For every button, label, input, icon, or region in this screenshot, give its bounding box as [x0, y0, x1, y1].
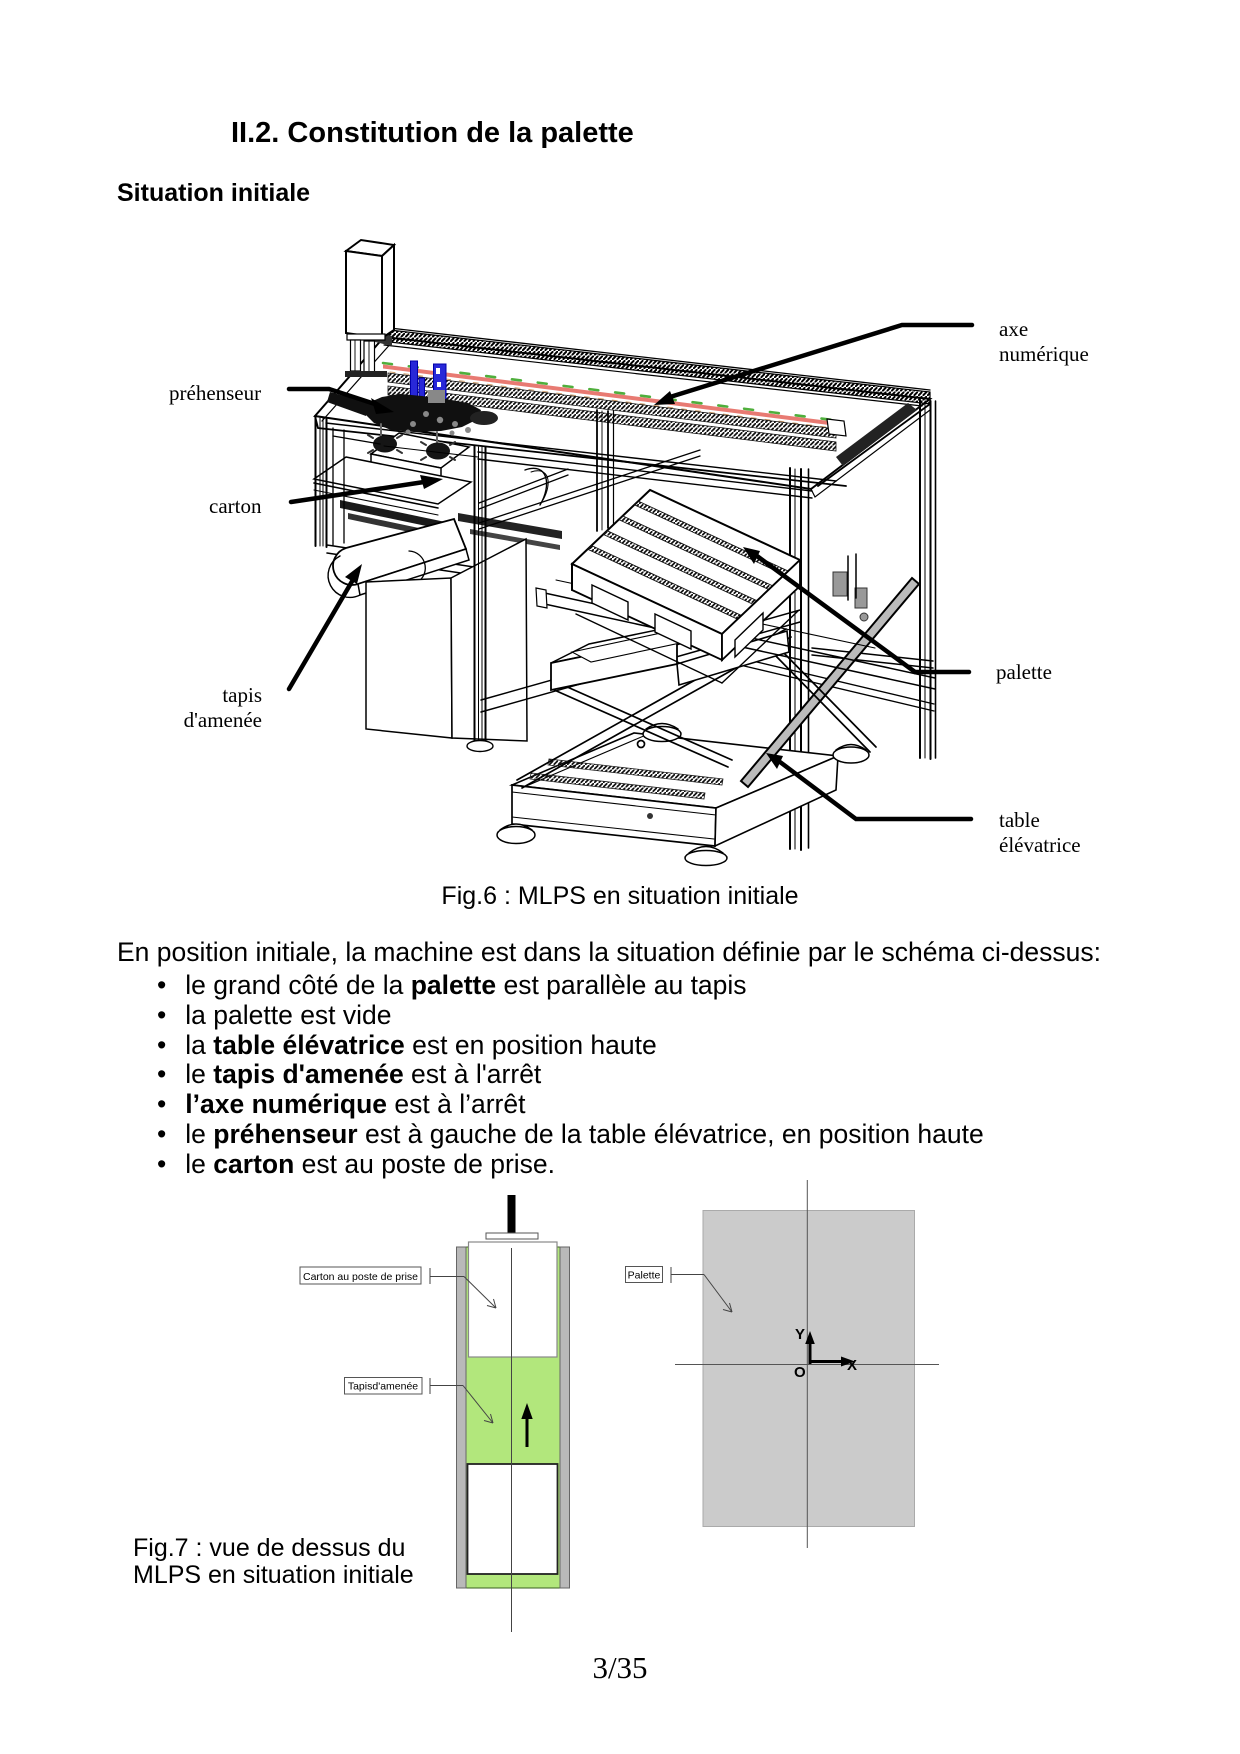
svg-text:Carton au poste de prise: Carton au poste de prise	[303, 1271, 418, 1283]
svg-text:O: O	[794, 1364, 806, 1381]
svg-text:Tapisd'amenée: Tapisd'amenée	[348, 1381, 418, 1393]
svg-text:X: X	[847, 1357, 857, 1374]
svg-text:Y: Y	[795, 1326, 805, 1343]
svg-text:Palette: Palette	[628, 1270, 661, 1282]
